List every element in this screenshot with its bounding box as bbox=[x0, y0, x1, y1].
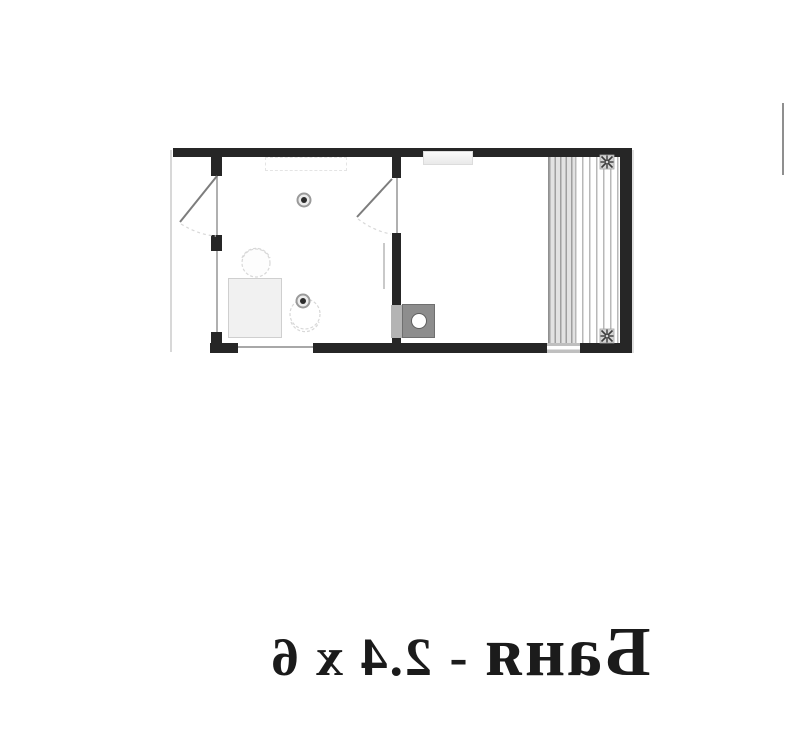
stove-door-icon bbox=[411, 313, 427, 329]
right-wall bbox=[620, 148, 632, 353]
chair bbox=[290, 299, 320, 329]
caption-dimensions: 2.4 x 6 bbox=[270, 630, 433, 684]
table bbox=[228, 278, 282, 338]
left-wall-corner bbox=[211, 332, 222, 353]
left-wall-pier bbox=[211, 235, 222, 251]
steam-room-window bbox=[547, 343, 580, 353]
wall-shelf-faint bbox=[265, 157, 347, 171]
bottom-wall-segment bbox=[313, 343, 547, 353]
chair bbox=[242, 249, 270, 277]
chair-backrest bbox=[291, 322, 319, 332]
sauna-bench-tier bbox=[548, 157, 575, 343]
left-wall-pier bbox=[211, 155, 222, 176]
chair-backrest bbox=[242, 248, 270, 258]
towel-rail bbox=[383, 243, 385, 289]
caption-separator: - bbox=[432, 630, 483, 684]
stove-wall-pass bbox=[391, 305, 402, 338]
ceiling-light-icon bbox=[298, 194, 311, 207]
top-wall bbox=[173, 148, 632, 157]
right-edge-artifact-line bbox=[782, 103, 784, 175]
right-outer-edge-line bbox=[632, 150, 634, 353]
washroom-window bbox=[238, 346, 313, 348]
caption-name: Баня bbox=[483, 618, 650, 688]
stove-icon bbox=[402, 304, 435, 338]
interior-door-leaf bbox=[357, 179, 392, 217]
page: Баня - 2.4 x 6 bbox=[0, 0, 792, 740]
plan-caption: Баня - 2.4 x 6 bbox=[258, 618, 662, 684]
ceiling-light-icon bbox=[297, 295, 310, 308]
entrance-door-leaf bbox=[180, 176, 217, 222]
bottom-wall-segment bbox=[580, 343, 632, 353]
porch-edge-line bbox=[170, 150, 172, 352]
interior-door-swing-arc bbox=[358, 219, 391, 234]
steam-room-shelf bbox=[423, 151, 473, 165]
sauna-bench-slats bbox=[575, 157, 620, 343]
partition-opening-line bbox=[396, 178, 398, 233]
partition-wall-upper bbox=[392, 155, 401, 178]
